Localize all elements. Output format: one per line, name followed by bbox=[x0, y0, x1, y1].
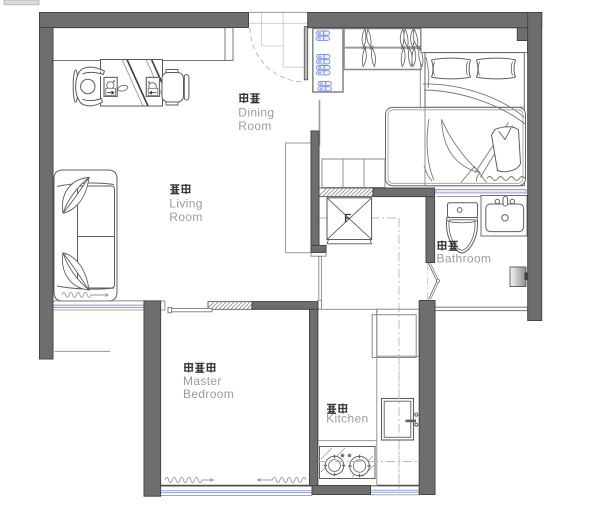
svg-text:Kitchen: Kitchen bbox=[326, 412, 368, 426]
svg-text:Room: Room bbox=[169, 210, 202, 224]
svg-text:Room: Room bbox=[238, 119, 271, 133]
svg-text:Living: Living bbox=[169, 197, 202, 211]
svg-text:Bathroom: Bathroom bbox=[437, 252, 492, 266]
svg-text:Bedroom: Bedroom bbox=[183, 387, 234, 401]
svg-text:Master: Master bbox=[183, 374, 222, 388]
svg-text:Dining: Dining bbox=[238, 106, 274, 120]
